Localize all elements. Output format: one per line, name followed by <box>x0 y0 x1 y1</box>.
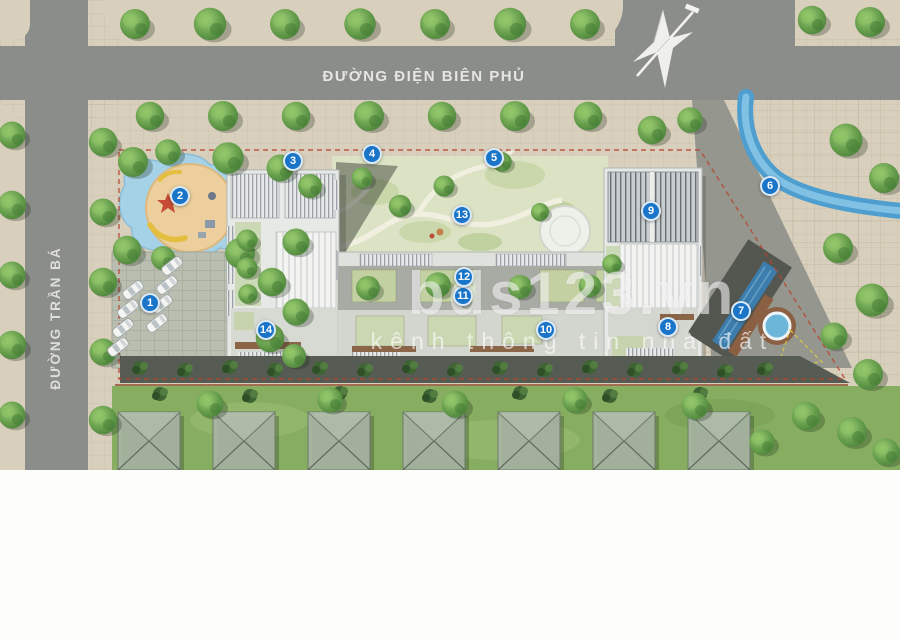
map-marker-4: 4 <box>362 144 382 164</box>
site-plan-map: ĐƯỜNG ĐIỆN BIÊN PHỦ ĐƯỜNG TRẦN BÁ bds123… <box>0 0 900 470</box>
map-marker-7: 7 <box>731 301 751 321</box>
map-marker-5: 5 <box>484 148 504 168</box>
map-marker-3: 3 <box>283 151 303 171</box>
map-marker-1: 1 <box>140 293 160 313</box>
building-bottom-wing <box>338 252 626 362</box>
site-plan-drawing: ĐƯỜNG ĐIỆN BIÊN PHỦ ĐƯỜNG TRẦN BÁ <box>0 0 900 470</box>
site-plan-image: ĐƯỜNG ĐIỆN BIÊN PHỦ ĐƯỜNG TRẦN BÁ bds123… <box>0 0 900 640</box>
road-label-top: ĐƯỜNG ĐIỆN BIÊN PHỦ <box>323 67 526 85</box>
road-label-left: ĐƯỜNG TRẦN BÁ <box>48 246 63 389</box>
map-marker-6: 6 <box>760 176 780 196</box>
map-marker-8: 8 <box>658 317 678 337</box>
legend: 1 Car parking (outside + 3rd 4th 5th flo… <box>0 470 900 640</box>
villa-houses <box>118 412 754 470</box>
map-marker-12: 12 <box>454 267 474 287</box>
play-circle <box>146 164 234 252</box>
map-marker-13: 13 <box>452 205 472 225</box>
map-marker-9: 9 <box>641 201 661 221</box>
map-marker-10: 10 <box>536 320 556 340</box>
map-marker-2: 2 <box>170 186 190 206</box>
map-marker-14: 14 <box>256 320 276 340</box>
central-park <box>332 150 608 258</box>
map-marker-11: 11 <box>453 286 473 306</box>
